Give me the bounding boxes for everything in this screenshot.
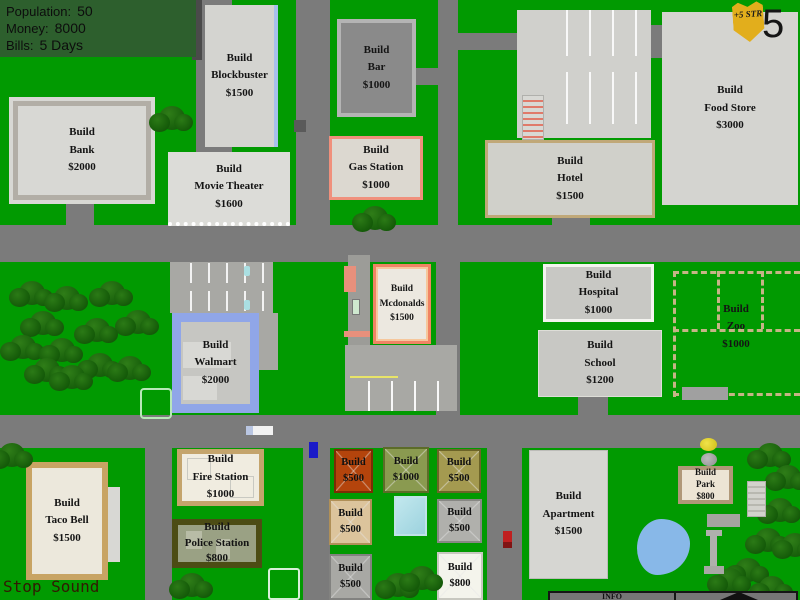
- tree-icon: [775, 465, 800, 489]
- tree-icon: [30, 311, 56, 335]
- duck-icon: [701, 453, 717, 466]
- money-value: 8000: [55, 20, 86, 36]
- road-horizontal-main: [0, 225, 800, 262]
- population-value: 50: [77, 3, 93, 19]
- build-blockbuster-button[interactable]: BuildBlockbuster$1500: [205, 5, 278, 147]
- playground-ladder: [747, 481, 766, 517]
- car-white-icon: [246, 426, 273, 435]
- game-map: Population:50 Money:8000 Bills:5 Days Bu…: [0, 0, 800, 600]
- road-vertical-right: [438, 0, 458, 262]
- badge-stat: STR: [745, 8, 762, 19]
- tree-icon: [179, 573, 205, 597]
- tree-icon: [84, 318, 110, 342]
- tree-icon: [409, 566, 435, 590]
- build-mcdonalds-button[interactable]: BuildMcdonalds$1500: [373, 264, 431, 344]
- tree-icon: [117, 356, 143, 380]
- level-number: 5: [762, 2, 784, 47]
- population-label: Population:: [6, 4, 71, 19]
- build-house-button[interactable]: Build$500: [437, 499, 482, 543]
- road-vertical-houses: [303, 445, 330, 600]
- road-stub-bank: [66, 204, 94, 229]
- build-movie-theater-button[interactable]: BuildMovie Theater$1600: [168, 152, 290, 226]
- tree-icon: [54, 286, 80, 310]
- bills-label: Bills:: [6, 38, 33, 53]
- yellow-line: [350, 376, 398, 378]
- hotel-parking-lot: [517, 10, 651, 138]
- swimming-pool: [394, 496, 427, 536]
- car-blue-icon: [309, 442, 318, 458]
- taco-bell-drive-window: [108, 487, 120, 562]
- build-hotel-button[interactable]: BuildHotel$1500: [485, 140, 655, 218]
- parking-lines: [545, 72, 649, 124]
- seesaw-base: [704, 566, 724, 574]
- manhole-icon: [294, 120, 306, 132]
- lot-marker: [268, 568, 300, 600]
- road-stub-foodstore: [650, 25, 662, 58]
- build-bank-button[interactable]: BuildBank$2000: [9, 97, 155, 204]
- tree-icon: [767, 498, 793, 522]
- build-house-button[interactable]: Build$500: [329, 554, 372, 600]
- menu-board: [352, 299, 360, 315]
- build-walmart-button[interactable]: Build Walmart $2000: [172, 313, 259, 413]
- tree-icon: [782, 533, 800, 557]
- duck-icon: [700, 438, 717, 451]
- build-bar-button[interactable]: BuildBar$1000: [337, 19, 416, 117]
- build-gas-station-button[interactable]: BuildGas Station$1000: [329, 136, 423, 200]
- bills-value: 5 Days: [39, 37, 83, 53]
- tree-icon: [59, 365, 85, 389]
- build-park-button[interactable]: BuildPark$800: [678, 466, 733, 504]
- drive-thru-stripe: [344, 331, 370, 337]
- build-zoo-button[interactable]: BuildZoo$1000: [700, 298, 772, 356]
- mcdonalds-drive-thru: [348, 255, 370, 345]
- drive-thru-window: [344, 266, 356, 292]
- zoo-fence: [673, 271, 676, 397]
- badge-bonus: +5: [733, 9, 743, 20]
- park-bench: [707, 514, 740, 527]
- build-apartment-button[interactable]: BuildApartment$1500: [529, 450, 608, 579]
- parking-lines: [545, 10, 649, 56]
- mcdonalds-parking-lot: [345, 345, 457, 411]
- pond: [637, 519, 690, 575]
- info-label: INFO: [550, 592, 674, 600]
- build-police-station-button[interactable]: Build Police Station $800: [172, 519, 262, 568]
- build-house-button[interactable]: Build$800: [437, 552, 483, 600]
- hotel-ladder-structure: [522, 95, 544, 140]
- road-vertical-tacobell: [145, 440, 172, 600]
- road-stub-school: [578, 397, 608, 417]
- expand-panel-button[interactable]: [676, 593, 796, 600]
- tree-icon: [159, 106, 185, 130]
- build-house-button[interactable]: Build$500: [437, 449, 481, 493]
- road-stub-bar: [414, 68, 440, 85]
- lamp-icon: [244, 266, 250, 276]
- tree-icon: [99, 281, 125, 305]
- parking-lines: [174, 263, 270, 283]
- zoo-shed: [682, 387, 728, 400]
- walmart-parking-lot: [170, 262, 273, 313]
- build-house-button[interactable]: Build$500: [334, 449, 373, 493]
- triangle-up-icon: [720, 592, 758, 600]
- tree-icon: [757, 443, 783, 467]
- build-house-button[interactable]: Build$500: [329, 499, 372, 545]
- money-label: Money:: [6, 21, 49, 36]
- stats-panel: Population:50 Money:8000 Bills:5 Days: [0, 0, 196, 57]
- walmart-side-lot: [258, 313, 278, 370]
- lot-marker: [140, 388, 172, 419]
- road-vertical-apartment: [487, 445, 522, 600]
- build-house-button[interactable]: Build$1000: [383, 447, 429, 493]
- info-button[interactable]: INFO: [550, 593, 676, 600]
- parking-lines: [347, 381, 455, 411]
- build-taco-bell-button[interactable]: BuildTaco Bell$1500: [26, 462, 108, 580]
- seesaw-pole: [710, 536, 717, 566]
- stop-sound-button[interactable]: Stop Sound: [3, 577, 99, 596]
- tree-icon: [19, 281, 45, 305]
- build-fire-station-button[interactable]: Build Fire Station $1000: [177, 449, 264, 506]
- tree-icon: [0, 443, 25, 467]
- tree-icon: [125, 310, 151, 334]
- tree-icon: [10, 335, 36, 359]
- build-hospital-button[interactable]: BuildHospital$1000: [543, 264, 654, 322]
- zoo-fence: [673, 271, 800, 274]
- parking-lines: [174, 291, 270, 311]
- tree-icon: [362, 206, 388, 230]
- build-school-button[interactable]: BuildSchool$1200: [538, 330, 662, 397]
- road-horizontal-south: [0, 415, 800, 448]
- lamp-icon: [244, 300, 250, 310]
- info-toolbar: INFO: [548, 591, 798, 600]
- car-red-icon: [503, 531, 512, 548]
- road-stub-parking: [458, 33, 518, 50]
